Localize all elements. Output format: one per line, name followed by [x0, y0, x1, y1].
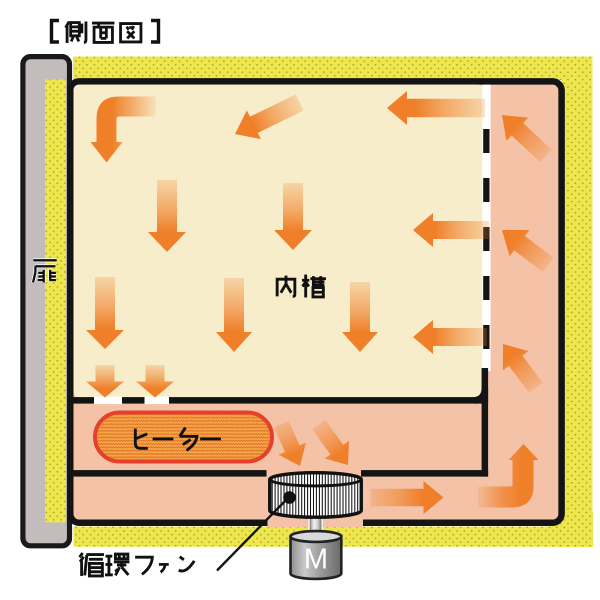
svg-text:M: M: [304, 544, 328, 576]
